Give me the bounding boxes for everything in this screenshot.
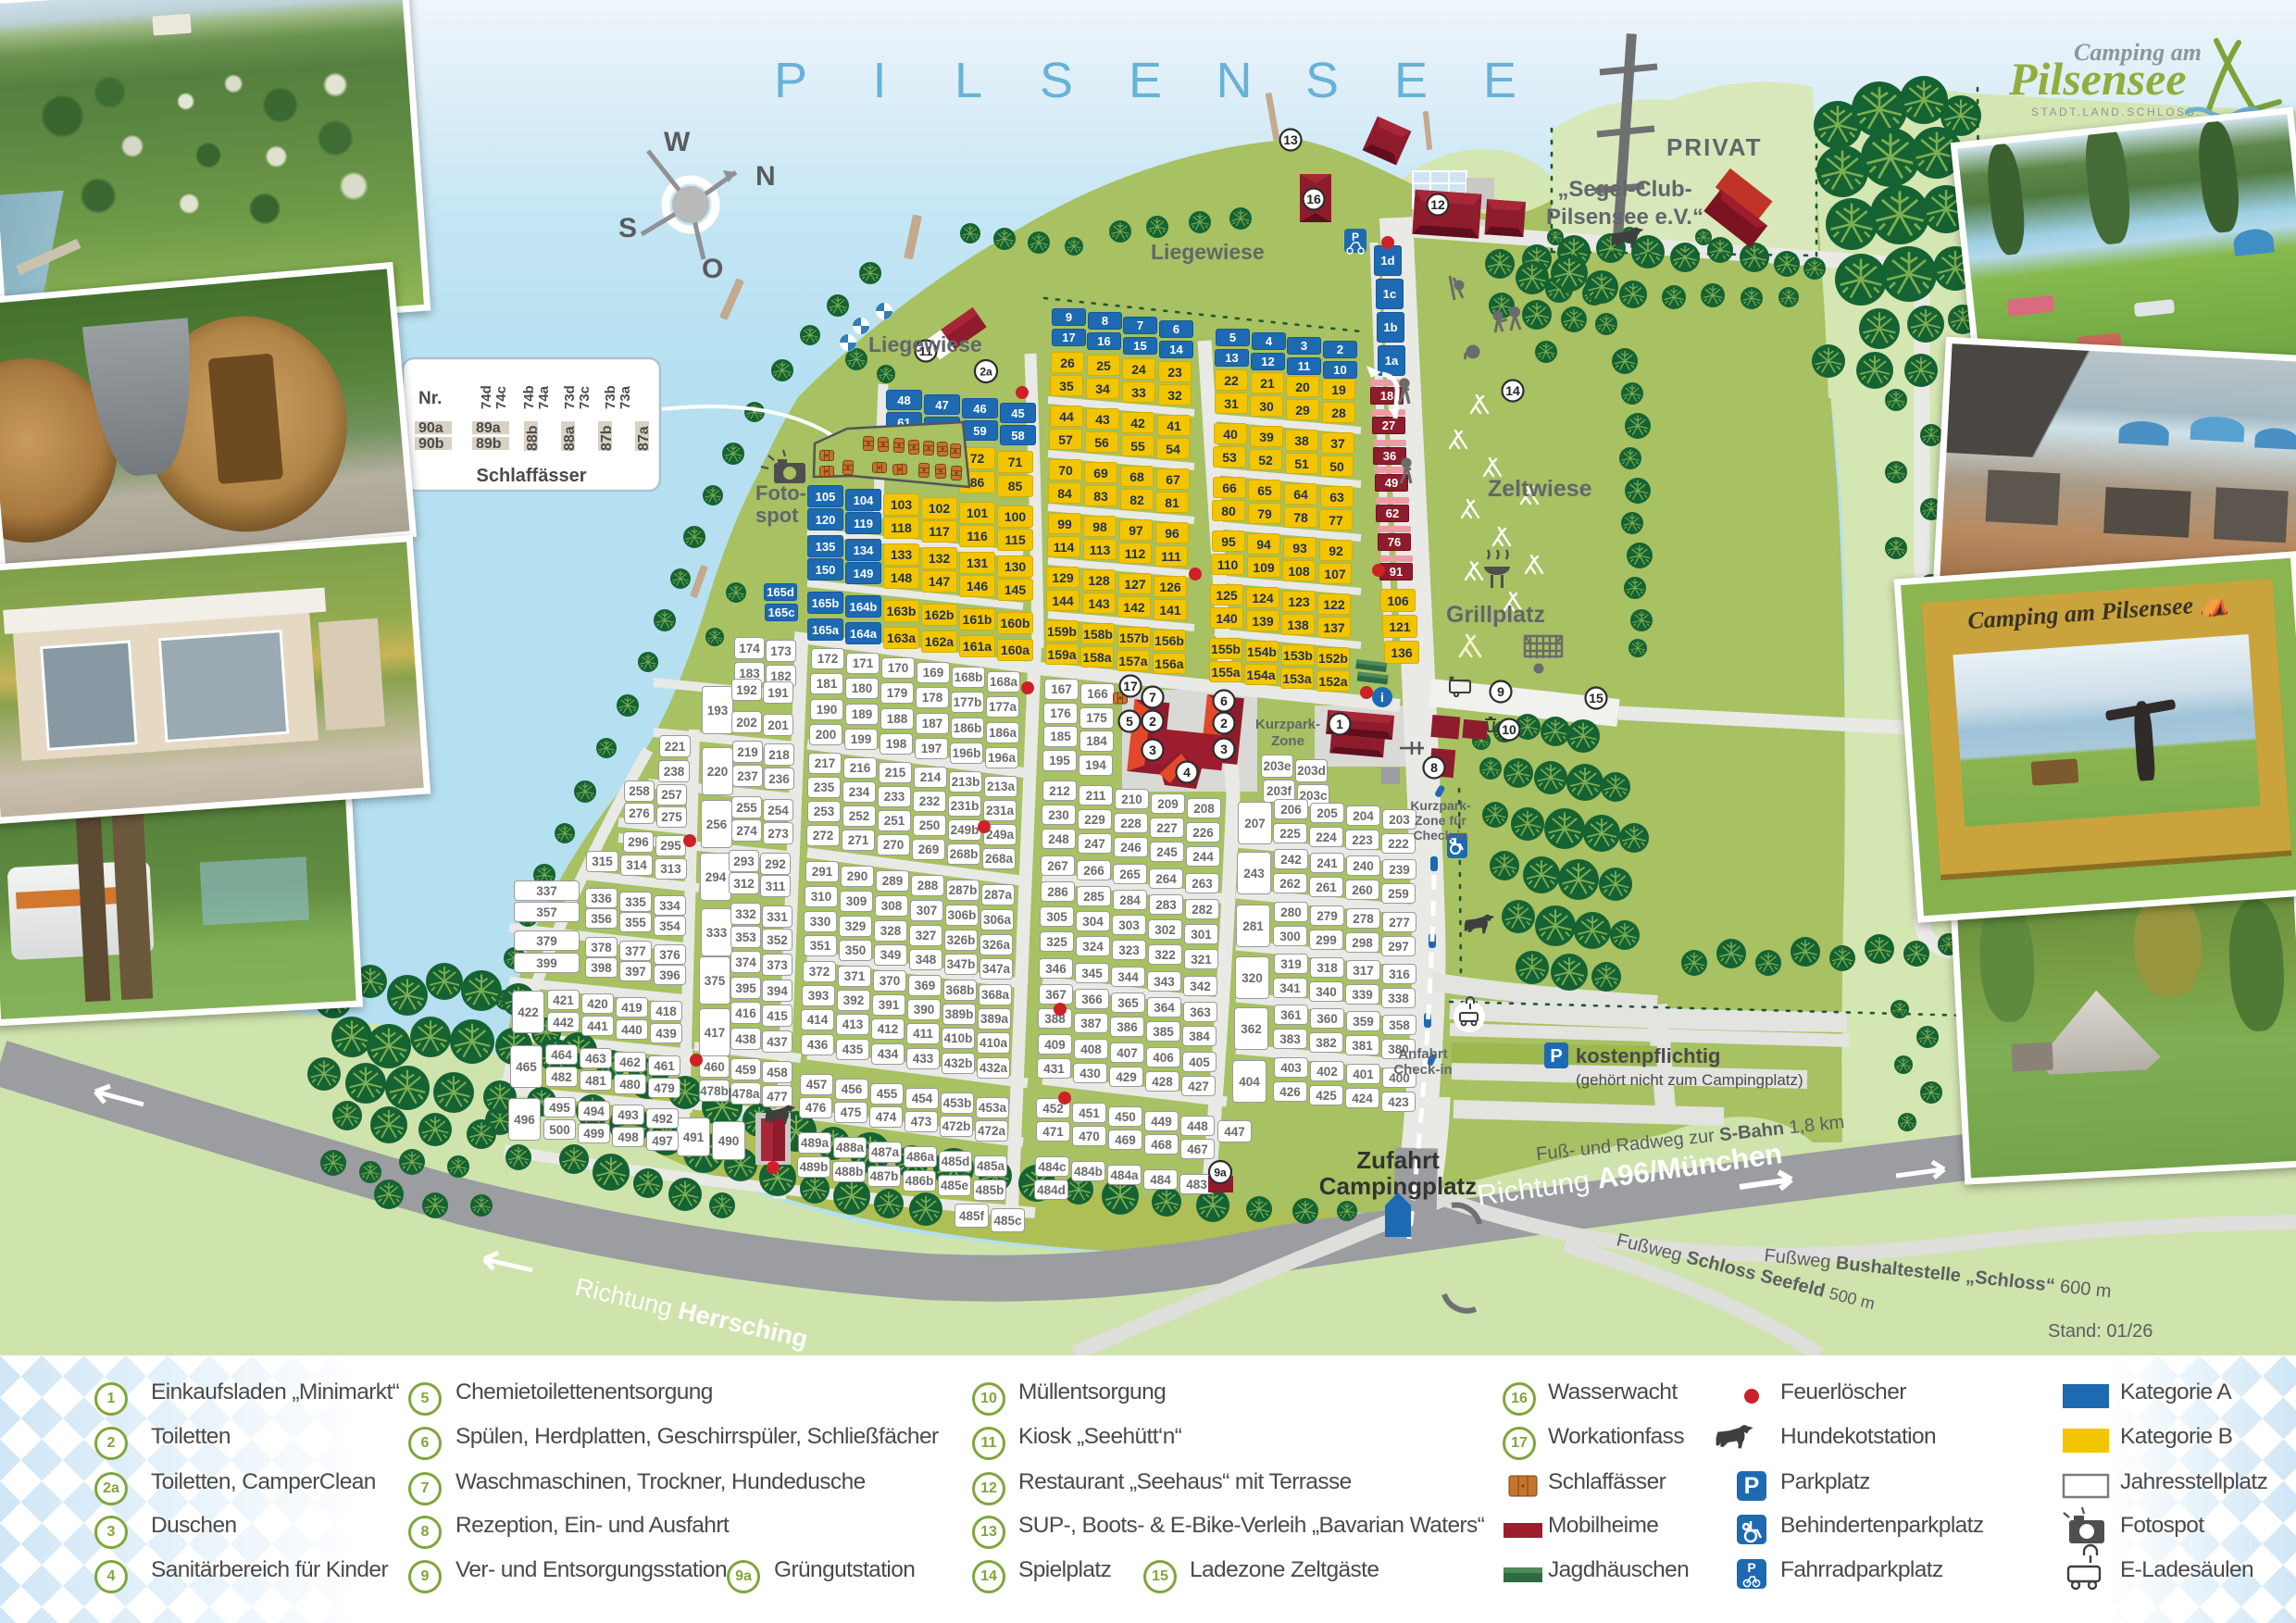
svg-text:Stand: 01/26: Stand: 01/26 (2048, 1321, 2152, 1342)
svg-text:74b: 74b (521, 385, 537, 409)
svg-text:spot: spot (755, 504, 799, 527)
svg-text:89b: 89b (476, 436, 502, 452)
svg-text:2a: 2a (980, 365, 992, 378)
svg-text:17: 17 (1123, 679, 1138, 693)
svg-text:i: i (1380, 690, 1384, 705)
svg-text:9a: 9a (1214, 1166, 1227, 1179)
svg-text:9: 9 (1497, 684, 1504, 699)
svg-text:P: P (1747, 1560, 1755, 1575)
svg-text:3: 3 (1149, 743, 1156, 757)
svg-text:12: 12 (1430, 197, 1445, 212)
svg-text:15: 15 (1589, 691, 1603, 705)
svg-text:90b: 90b (418, 436, 444, 452)
svg-text:73c: 73c (577, 386, 593, 409)
svg-text:P: P (1550, 1046, 1562, 1067)
svg-text:88b: 88b (525, 425, 541, 451)
svg-text:13: 13 (1283, 132, 1298, 147)
svg-text:10: 10 (1502, 722, 1516, 737)
svg-text:4: 4 (1183, 765, 1191, 780)
svg-text:89a: 89a (476, 420, 501, 436)
svg-text:Foto-: Foto- (755, 481, 806, 505)
svg-text:O: O (702, 254, 723, 284)
svg-text:73a: 73a (618, 385, 633, 409)
svg-text:Liegewiese: Liegewiese (868, 332, 982, 356)
svg-text:Zeltwiese: Zeltwiese (1488, 476, 1592, 502)
svg-text:87b: 87b (599, 425, 615, 451)
svg-text:kostenpflichtig: kostenpflichtig (1576, 1044, 1720, 1067)
svg-text:14: 14 (1505, 383, 1520, 398)
svg-text:7: 7 (1149, 690, 1156, 705)
svg-text:Check-in: Check-in (1413, 828, 1467, 843)
svg-text:Kurzpark-: Kurzpark- (1255, 717, 1320, 732)
svg-text:Zone für: Zone für (1415, 813, 1467, 828)
svg-text:Anfahrt: Anfahrt (1398, 1046, 1447, 1062)
svg-text:88a: 88a (562, 426, 578, 451)
svg-text:87a: 87a (636, 426, 652, 451)
svg-text:74c: 74c (493, 386, 509, 409)
svg-text:2: 2 (1149, 714, 1156, 729)
svg-text:Check-in: Check-in (1393, 1062, 1452, 1078)
svg-text:73d: 73d (562, 385, 578, 409)
svg-text:S: S (618, 213, 637, 243)
svg-text:Richtung Herrsching: Richtung Herrsching (573, 1273, 811, 1354)
svg-text:„Segel-Club-: „Segel-Club- (1557, 177, 1691, 202)
svg-text:3: 3 (1220, 742, 1228, 756)
svg-text:73b: 73b (603, 385, 618, 409)
svg-text:74a: 74a (536, 385, 552, 409)
svg-text:Zufahrt: Zufahrt (1356, 1146, 1440, 1174)
svg-text:90a: 90a (418, 420, 443, 436)
svg-text:8: 8 (1430, 760, 1438, 775)
svg-text:16: 16 (1306, 192, 1321, 206)
svg-text:Grillplatz: Grillplatz (1446, 602, 1545, 628)
svg-text:PRIVAT: PRIVAT (1666, 133, 1762, 161)
svg-text:N: N (755, 161, 776, 192)
svg-text:W: W (664, 127, 691, 157)
svg-text:Schlaffässer: Schlaffässer (477, 466, 587, 486)
svg-text:(gehört nicht zum Campingplatz: (gehört nicht zum Campingplatz) (1576, 1071, 1803, 1089)
svg-text:P: P (1352, 231, 1359, 243)
svg-text:Nr.: Nr. (418, 389, 442, 408)
svg-text:74d: 74d (479, 385, 494, 409)
svg-text:P: P (1744, 1473, 1760, 1499)
svg-text:Pilsensee e.V.“: Pilsensee e.V.“ (1546, 205, 1703, 230)
svg-text:Liegewiese: Liegewiese (1151, 240, 1265, 264)
svg-text:2: 2 (1220, 716, 1228, 730)
svg-text:6: 6 (1220, 693, 1228, 708)
svg-text:1: 1 (1336, 717, 1343, 731)
svg-text:5: 5 (1126, 714, 1133, 729)
svg-text:Zone: Zone (1271, 733, 1304, 749)
svg-text:Kurzpark-: Kurzpark- (1410, 798, 1471, 813)
